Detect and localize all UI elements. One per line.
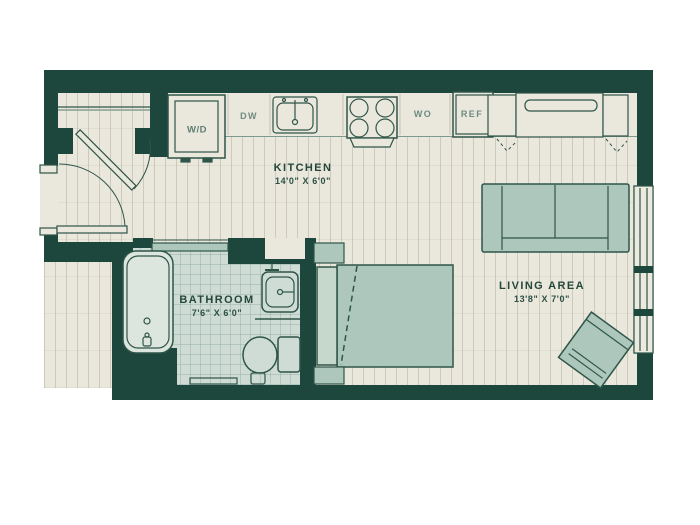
entry-closet: [58, 107, 150, 110]
accent-chair: [559, 312, 634, 388]
window: [634, 186, 653, 353]
living-area-label: LIVING AREA: [499, 280, 585, 292]
bath-niche-line: [190, 378, 237, 384]
sliding-bathroom-door: [150, 240, 228, 251]
bathroom-label: BATHROOM: [179, 294, 254, 306]
closet-door-swing: [76, 130, 151, 190]
stove: [347, 97, 397, 147]
toilet: [243, 337, 300, 384]
wall-oven-label: WO: [414, 109, 432, 119]
living-area-dims: 13'8" X 7'0": [514, 294, 570, 304]
kitchen-dims: 14'0" X 6'0": [275, 176, 331, 186]
bathroom-dims: 7'6" X 6'0": [192, 308, 242, 318]
floor-plan: KITCHEN 14'0" X 6'0" BATHROOM 7'6" X 6'0…: [0, 0, 700, 525]
wardrobe-closet: [488, 93, 628, 137]
bed: [317, 265, 453, 367]
closet-door-arrows: [497, 139, 627, 152]
sofa: [482, 184, 629, 252]
kitchen-label: KITCHEN: [274, 162, 333, 174]
washer-dryer-label: W/D: [187, 125, 207, 136]
entry-door: [40, 164, 127, 235]
bathtub: [123, 251, 173, 353]
refrigerator-label: REF: [461, 109, 483, 119]
kitchen-sink: [273, 97, 317, 133]
bathroom-sink: [255, 264, 300, 319]
dishwasher-label: DW: [240, 111, 258, 121]
fixtures-layer: [0, 0, 700, 525]
